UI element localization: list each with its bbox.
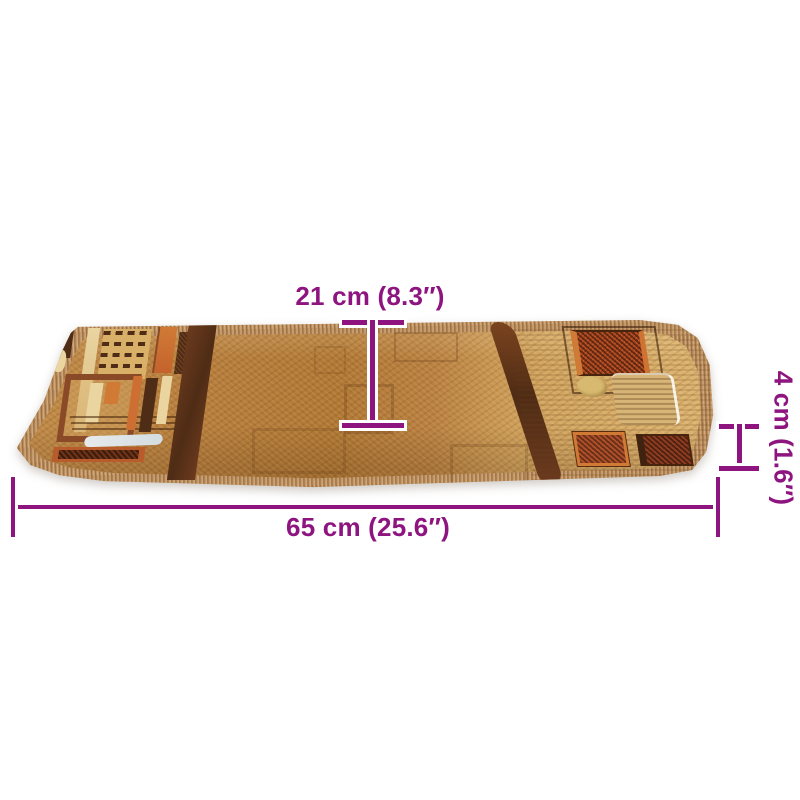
pattern-rust-square-bottom-right: [636, 434, 694, 466]
mat-right-end-pattern: [14, 316, 745, 498]
depth-dimension-line: [342, 423, 404, 428]
width-dimension-tick-left: [11, 477, 15, 537]
mat-pattern-layer: [14, 316, 716, 498]
product-dimension-diagram: 21 cm (8.3″) 4 cm (1.6″) 65 cm (25.6″): [0, 0, 800, 800]
depth-dimension-label: 21 cm (8.3″): [295, 281, 444, 312]
pattern-rust-square-top: [570, 330, 650, 376]
width-dimension-line: [13, 505, 719, 509]
width-dimension-tick-right: [716, 477, 720, 537]
pattern-ridged-square: [610, 373, 681, 425]
width-dimension-label: 65 cm (25.6″): [286, 512, 450, 543]
depth-dimension-line: [370, 320, 375, 428]
thickness-dimension-label: 4 cm (1.6″): [768, 371, 799, 506]
pattern-rust-square-bottom-left: [572, 432, 629, 466]
thickness-dimension-line: [737, 424, 742, 471]
stair-mat-photo: [14, 316, 716, 498]
thickness-dimension-line: [719, 466, 759, 471]
